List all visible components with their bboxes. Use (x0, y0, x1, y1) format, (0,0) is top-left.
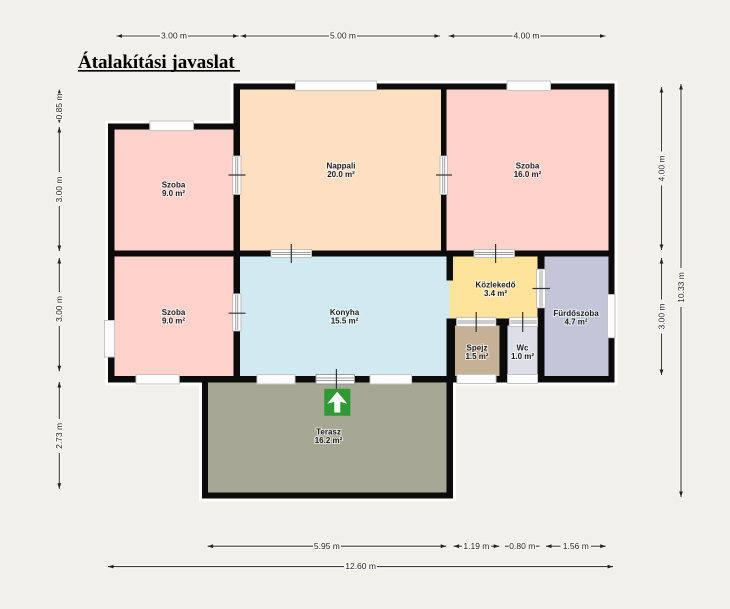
svg-text:3.00 m: 3.00 m (54, 177, 64, 203)
svg-text:4.7 m²: 4.7 m² (564, 318, 587, 327)
svg-text:5.00 m: 5.00 m (330, 31, 356, 41)
svg-text:3.4 m²: 3.4 m² (484, 289, 507, 298)
svg-text:4.00 m: 4.00 m (514, 31, 540, 41)
svg-text:3.00 m: 3.00 m (656, 304, 666, 330)
svg-text:1.19 m: 1.19 m (463, 541, 489, 551)
svg-text:9.0 m²: 9.0 m² (162, 189, 185, 198)
svg-text:16.2 m²: 16.2 m² (315, 436, 343, 445)
svg-text:9.0 m²: 9.0 m² (162, 317, 185, 326)
svg-text:5.95 m: 5.95 m (314, 541, 340, 551)
svg-text:4.00 m: 4.00 m (656, 156, 666, 182)
svg-text:1.5 m²: 1.5 m² (465, 352, 488, 361)
svg-text:1.56 m: 1.56 m (563, 541, 589, 551)
svg-text:0.80 m: 0.80 m (509, 541, 535, 551)
svg-text:3.00 m: 3.00 m (54, 296, 64, 322)
svg-text:0.85 m: 0.85 m (54, 94, 64, 120)
svg-text:12.60 m: 12.60 m (345, 561, 376, 571)
svg-text:10.33 m: 10.33 m (676, 272, 686, 303)
svg-text:16.0 m²: 16.0 m² (514, 170, 542, 179)
svg-text:15.5 m²: 15.5 m² (331, 317, 359, 326)
svg-text:Átalakítási javaslat: Átalakítási javaslat (78, 51, 235, 73)
svg-text:20.0 m²: 20.0 m² (327, 170, 355, 179)
svg-text:3.00 m: 3.00 m (161, 31, 187, 41)
svg-text:2.73 m: 2.73 m (54, 423, 64, 449)
svg-text:1.0 m²: 1.0 m² (511, 352, 534, 361)
